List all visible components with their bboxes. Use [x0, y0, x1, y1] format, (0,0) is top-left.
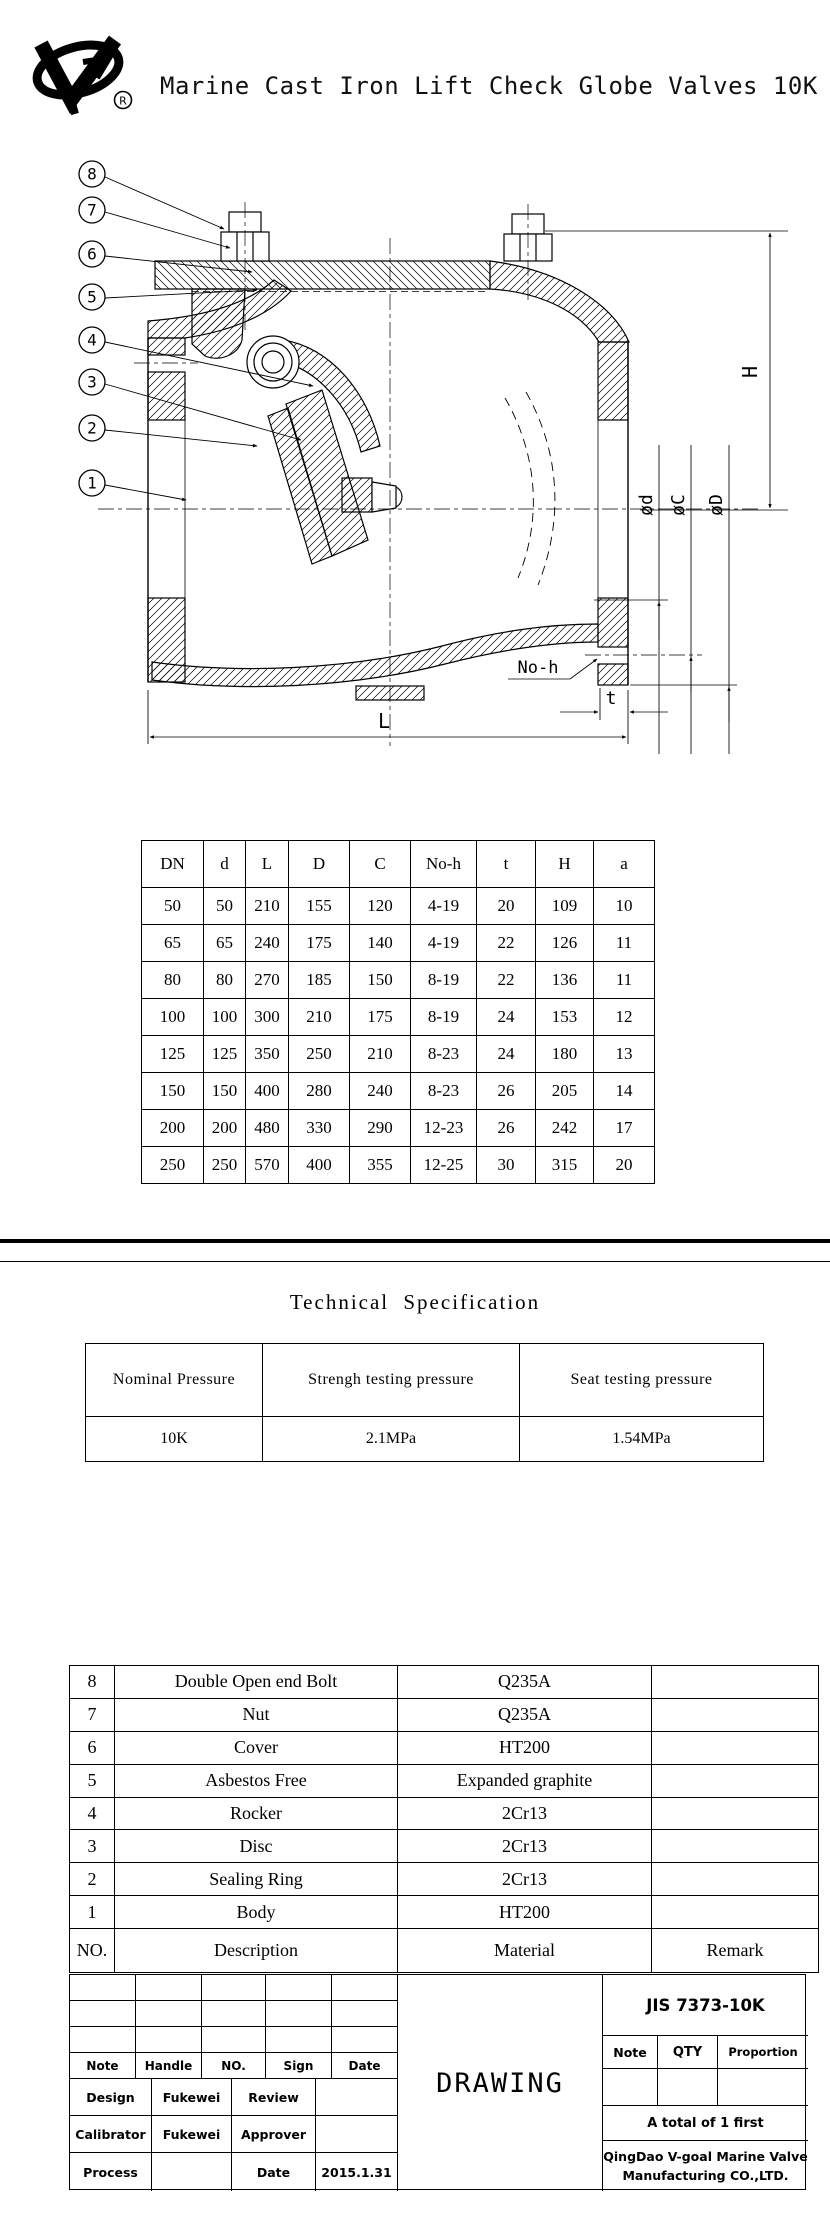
svg-text:t: t [606, 688, 617, 709]
dim-cell: 8-19 [411, 962, 477, 999]
parts-row: 3Disc2Cr13 [70, 1830, 819, 1863]
spec-header-seat: Seat testing pressure [520, 1344, 764, 1417]
parts-row: 6CoverHT200 [70, 1731, 819, 1764]
disc-nut [342, 478, 372, 512]
dim-cell: 175 [289, 925, 350, 962]
valve-body [148, 261, 629, 700]
dim-row: 65652401751404-192212611 [142, 925, 655, 962]
parts-footer-row: NO.DescriptionMaterialRemark [70, 1929, 819, 1973]
dim-row: 1251253502502108-232418013 [142, 1036, 655, 1073]
process-label: Process [70, 2153, 152, 2191]
svg-text:3: 3 [87, 373, 97, 392]
dim-cell: 65 [204, 925, 246, 962]
revision-empty-cell [136, 2027, 202, 2053]
parts-cell: Expanded graphite [398, 1764, 652, 1797]
dim-cell: 155 [289, 888, 350, 925]
parts-cell: Double Open end Bolt [115, 1666, 398, 1699]
parts-cell: 6 [70, 1731, 115, 1764]
company-line1: QingDao V-goal Marine Valve [603, 2147, 807, 2166]
svg-text:8: 8 [87, 165, 97, 184]
revision-empty-cell [332, 2027, 398, 2053]
dim-cell: 12 [594, 999, 655, 1036]
dim-col-header: t [477, 841, 536, 888]
dim-cell: 185 [289, 962, 350, 999]
dim-cell: 250 [289, 1036, 350, 1073]
parts-cell: Q235A [398, 1698, 652, 1731]
parts-cell: Q235A [398, 1666, 652, 1699]
parts-cell: 4 [70, 1797, 115, 1830]
dim-phi-D: øD [630, 445, 737, 754]
revision-empty-cell [266, 2027, 332, 2053]
parts-cell: 1 [70, 1896, 115, 1929]
dim-cell: 26 [477, 1110, 536, 1147]
dim-cell: 300 [246, 999, 289, 1036]
dim-cell: 350 [246, 1036, 289, 1073]
dim-H: H [545, 231, 788, 510]
dimension-table: DNdLDCNo-htHa 50502101551204-19201091065… [141, 840, 655, 1184]
spec-header-nominal: Nominal Pressure [86, 1344, 263, 1417]
svg-text:5: 5 [87, 288, 97, 307]
dim-cell: 11 [594, 962, 655, 999]
dim-col-header: H [536, 841, 594, 888]
dim-cell: 250 [142, 1147, 204, 1184]
parts-cell [652, 1731, 819, 1764]
parts-cell [652, 1797, 819, 1830]
dim-col-header: No-h [411, 841, 477, 888]
parts-cell [652, 1764, 819, 1797]
parts-footer-cell: Material [398, 1929, 652, 1973]
dim-cell: 240 [246, 925, 289, 962]
spec-value-strength: 2.1MPa [263, 1417, 520, 1462]
parts-cell: 2 [70, 1863, 115, 1896]
svg-text:7: 7 [87, 201, 97, 220]
dim-row: 50502101551204-192010910 [142, 888, 655, 925]
proportion-value [718, 2069, 808, 2106]
parts-footer-cell: Description [115, 1929, 398, 1973]
note-value [603, 2069, 658, 2106]
revision-empty-cell [70, 1975, 136, 2001]
dim-cell: 13 [594, 1036, 655, 1073]
dim-cell: 8-23 [411, 1036, 477, 1073]
parts-cell: Asbestos Free [115, 1764, 398, 1797]
spec-header-strength: Strengh testing pressure [263, 1344, 520, 1417]
dim-cell: 126 [536, 925, 594, 962]
parts-table-body: 8Double Open end BoltQ235A7NutQ235A6Cove… [70, 1666, 819, 1973]
spec-heading: Technical Specification [0, 1290, 830, 1315]
dim-cell: 210 [246, 888, 289, 925]
date-value: 2015.1.31 [316, 2153, 398, 2191]
review-label: Review [232, 2079, 316, 2116]
dim-cell: 290 [350, 1110, 411, 1147]
parts-row: 5Asbestos FreeExpanded graphite [70, 1764, 819, 1797]
parts-cell [652, 1896, 819, 1929]
dim-cell: 24 [477, 999, 536, 1036]
dim-cell: 8-23 [411, 1073, 477, 1110]
dim-cell: 240 [350, 1073, 411, 1110]
rocker-pivot [247, 336, 299, 388]
parts-cell: 8 [70, 1666, 115, 1699]
parts-cell: Sealing Ring [115, 1863, 398, 1896]
revision-header-cell: Date [332, 2053, 398, 2079]
standard-code: JIS 7373-10K [603, 1975, 808, 2036]
dim-cell: 315 [536, 1147, 594, 1184]
right-flange-lower [598, 598, 628, 647]
revision-empty-cell [332, 2001, 398, 2027]
parts-cell: 3 [70, 1830, 115, 1863]
revision-empty-cell [136, 2001, 202, 2027]
parts-cell: 2Cr13 [398, 1830, 652, 1863]
dim-cell: 153 [536, 999, 594, 1036]
bolts [221, 212, 552, 261]
revision-empty-cell [70, 2001, 136, 2027]
dim-cell: 125 [142, 1036, 204, 1073]
revision-empty-cell [202, 2027, 266, 2053]
dim-cell: 22 [477, 925, 536, 962]
dim-cell: 65 [142, 925, 204, 962]
dim-cell: 400 [289, 1147, 350, 1184]
dim-cell: 50 [204, 888, 246, 925]
parts-cell: 2Cr13 [398, 1863, 652, 1896]
revision-header-cell: NO. [202, 2053, 266, 2079]
parts-cell: Cover [115, 1731, 398, 1764]
parts-footer-cell: NO. [70, 1929, 115, 1973]
dim-cell: 4-19 [411, 925, 477, 962]
dim-cell: 200 [142, 1110, 204, 1147]
svg-text:No-h: No-h [518, 658, 559, 678]
dim-cell: 4-19 [411, 888, 477, 925]
dim-no-h: No-h [508, 658, 597, 679]
dim-cell: 136 [536, 962, 594, 999]
svg-text:L: L [378, 709, 390, 733]
dim-cell: 180 [536, 1036, 594, 1073]
dim-col-header: d [204, 841, 246, 888]
disc-bolt-head [372, 482, 396, 512]
inner-cavity-hidden [505, 398, 533, 578]
spec-value-seat: 1.54MPa [520, 1417, 764, 1462]
dim-cell: 30 [477, 1147, 536, 1184]
dim-cell: 400 [246, 1073, 289, 1110]
parts-cell: 7 [70, 1698, 115, 1731]
dim-col-header: C [350, 841, 411, 888]
dim-cell: 20 [594, 1147, 655, 1184]
parts-row: 4Rocker2Cr13 [70, 1797, 819, 1830]
parts-cell: Disc [115, 1830, 398, 1863]
parts-table: 8Double Open end BoltQ235A7NutQ235A6Cove… [69, 1665, 819, 1973]
approver-label: Approver [232, 2116, 316, 2153]
revision-header-cell: Handle [136, 2053, 202, 2079]
dim-cell: 8-19 [411, 999, 477, 1036]
spec-value-nominal: 10K [86, 1417, 263, 1462]
company-name: QingDao V-goal Marine Valve Manufacturin… [603, 2141, 808, 2191]
dim-row: 20020048033029012-232624217 [142, 1110, 655, 1147]
dim-cell: 150 [204, 1073, 246, 1110]
cover-plate [155, 261, 490, 292]
parts-cell [652, 1666, 819, 1699]
dim-cell: 210 [289, 999, 350, 1036]
revision-empty-cell [70, 2027, 136, 2053]
revision-empty-cell [266, 2001, 332, 2027]
dim-row: 25025057040035512-253031520 [142, 1147, 655, 1184]
dim-cell: 50 [142, 888, 204, 925]
svg-text:1: 1 [87, 474, 97, 493]
right-flange-upper [598, 342, 628, 420]
parts-cell: Nut [115, 1698, 398, 1731]
title-block: NoteHandleNO.SignDate Design Fukewei Rev… [69, 1974, 806, 2190]
dim-cell: 570 [246, 1147, 289, 1184]
dim-col-header: a [594, 841, 655, 888]
revision-header-cell: Note [70, 2053, 136, 2079]
dim-cell: 80 [142, 962, 204, 999]
proportion-header: Proportion [718, 2036, 808, 2069]
dim-cell: 200 [204, 1110, 246, 1147]
dim-cell: 355 [350, 1147, 411, 1184]
calibrator-by: Fukewei [152, 2116, 232, 2153]
qty-value [658, 2069, 718, 2106]
dim-cell: 109 [536, 888, 594, 925]
svg-text:H: H [738, 366, 762, 378]
dim-cell: 17 [594, 1110, 655, 1147]
parts-cell [652, 1698, 819, 1731]
review-sign [316, 2079, 398, 2116]
outlet-wall [490, 261, 629, 342]
dim-cell: 12-25 [411, 1147, 477, 1184]
approver-sign [316, 2116, 398, 2153]
valve-drawing: 8 7 6 5 4 3 2 1 H L [0, 0, 830, 800]
parts-row: 2Sealing Ring2Cr13 [70, 1863, 819, 1896]
parts-cell: HT200 [398, 1896, 652, 1929]
dim-phi-C: øC [668, 445, 691, 754]
dim-cell: 280 [289, 1073, 350, 1110]
design-by: Fukewei [152, 2079, 232, 2116]
svg-text:6: 6 [87, 245, 97, 264]
dim-t: t [560, 688, 668, 720]
revision-empty-cell [202, 2001, 266, 2027]
parts-cell: 2Cr13 [398, 1797, 652, 1830]
dim-cell: 100 [142, 999, 204, 1036]
revision-empty-cell [332, 1975, 398, 2001]
parts-cell [652, 1863, 819, 1896]
parts-cell: HT200 [398, 1731, 652, 1764]
dim-cell: 80 [204, 962, 246, 999]
dim-cell: 14 [594, 1073, 655, 1110]
parts-cell [652, 1830, 819, 1863]
svg-text:ød: ød [636, 494, 657, 516]
dim-cell: 210 [350, 1036, 411, 1073]
dim-cell: 480 [246, 1110, 289, 1147]
svg-text:2: 2 [87, 419, 97, 438]
design-label: Design [70, 2079, 152, 2116]
callout-1: 1 [79, 470, 186, 500]
dim-row: 80802701851508-192213611 [142, 962, 655, 999]
company-line2: Manufacturing CO.,LTD. [622, 2166, 788, 2185]
dim-cell: 205 [536, 1073, 594, 1110]
dim-cell: 125 [204, 1036, 246, 1073]
note-header: Note [603, 2036, 658, 2069]
dim-cell: 242 [536, 1110, 594, 1147]
dim-cell: 12-23 [411, 1110, 477, 1147]
dim-cell: 100 [204, 999, 246, 1036]
svg-text:øD: øD [706, 494, 727, 516]
parts-row: 8Double Open end BoltQ235A [70, 1666, 819, 1699]
parts-row: 1BodyHT200 [70, 1896, 819, 1929]
drawing-sheet: R Marine Cast Iron Lift Check Globe Valv… [0, 0, 830, 2223]
dim-cell: 330 [289, 1110, 350, 1147]
dim-row: 1501504002802408-232620514 [142, 1073, 655, 1110]
spec-table: Nominal Pressure Strengh testing pressur… [85, 1343, 764, 1462]
date-label: Date [232, 2153, 316, 2191]
dim-col-header: L [246, 841, 289, 888]
dimension-table-body: 50502101551204-19201091065652401751404-1… [142, 888, 655, 1184]
dim-cell: 11 [594, 925, 655, 962]
process-by [152, 2153, 232, 2191]
revision-header-cell: Sign [266, 2053, 332, 2079]
qty-header: QTY [658, 2036, 718, 2069]
sheet-total: A total of 1 first [603, 2106, 808, 2141]
dim-cell: 150 [350, 962, 411, 999]
revision-empty-cell [136, 1975, 202, 2001]
parts-row: 7NutQ235A [70, 1698, 819, 1731]
dim-cell: 26 [477, 1073, 536, 1110]
drawing-label: DRAWING [398, 1975, 602, 2191]
title-block-right: JIS 7373-10K Note QTY Proportion A total… [602, 1975, 807, 2191]
parts-cell: Body [115, 1896, 398, 1929]
dim-cell: 270 [246, 962, 289, 999]
parts-cell: 5 [70, 1764, 115, 1797]
dim-cell: 250 [204, 1147, 246, 1184]
dim-cell: 120 [350, 888, 411, 925]
dim-cell: 10 [594, 888, 655, 925]
dim-cell: 24 [477, 1036, 536, 1073]
section-divider-thick [0, 1239, 830, 1243]
dim-col-header: DN [142, 841, 204, 888]
svg-text:4: 4 [87, 331, 97, 350]
svg-text:øC: øC [668, 494, 689, 516]
dim-cell: 140 [350, 925, 411, 962]
parts-footer-cell: Remark [652, 1929, 819, 1973]
dim-col-header: D [289, 841, 350, 888]
dim-row: 1001003002101758-192415312 [142, 999, 655, 1036]
revision-empty-cell [266, 1975, 332, 2001]
dim-cell: 175 [350, 999, 411, 1036]
dimension-table-header: DNdLDCNo-htHa [142, 841, 655, 888]
calibrator-label: Calibrator [70, 2116, 152, 2153]
section-divider-thin [0, 1261, 830, 1262]
callout-7: 7 [79, 197, 230, 248]
parts-cell: Rocker [115, 1797, 398, 1830]
dim-cell: 150 [142, 1073, 204, 1110]
revision-empty-cell [202, 1975, 266, 2001]
dim-cell: 20 [477, 888, 536, 925]
dim-cell: 22 [477, 962, 536, 999]
